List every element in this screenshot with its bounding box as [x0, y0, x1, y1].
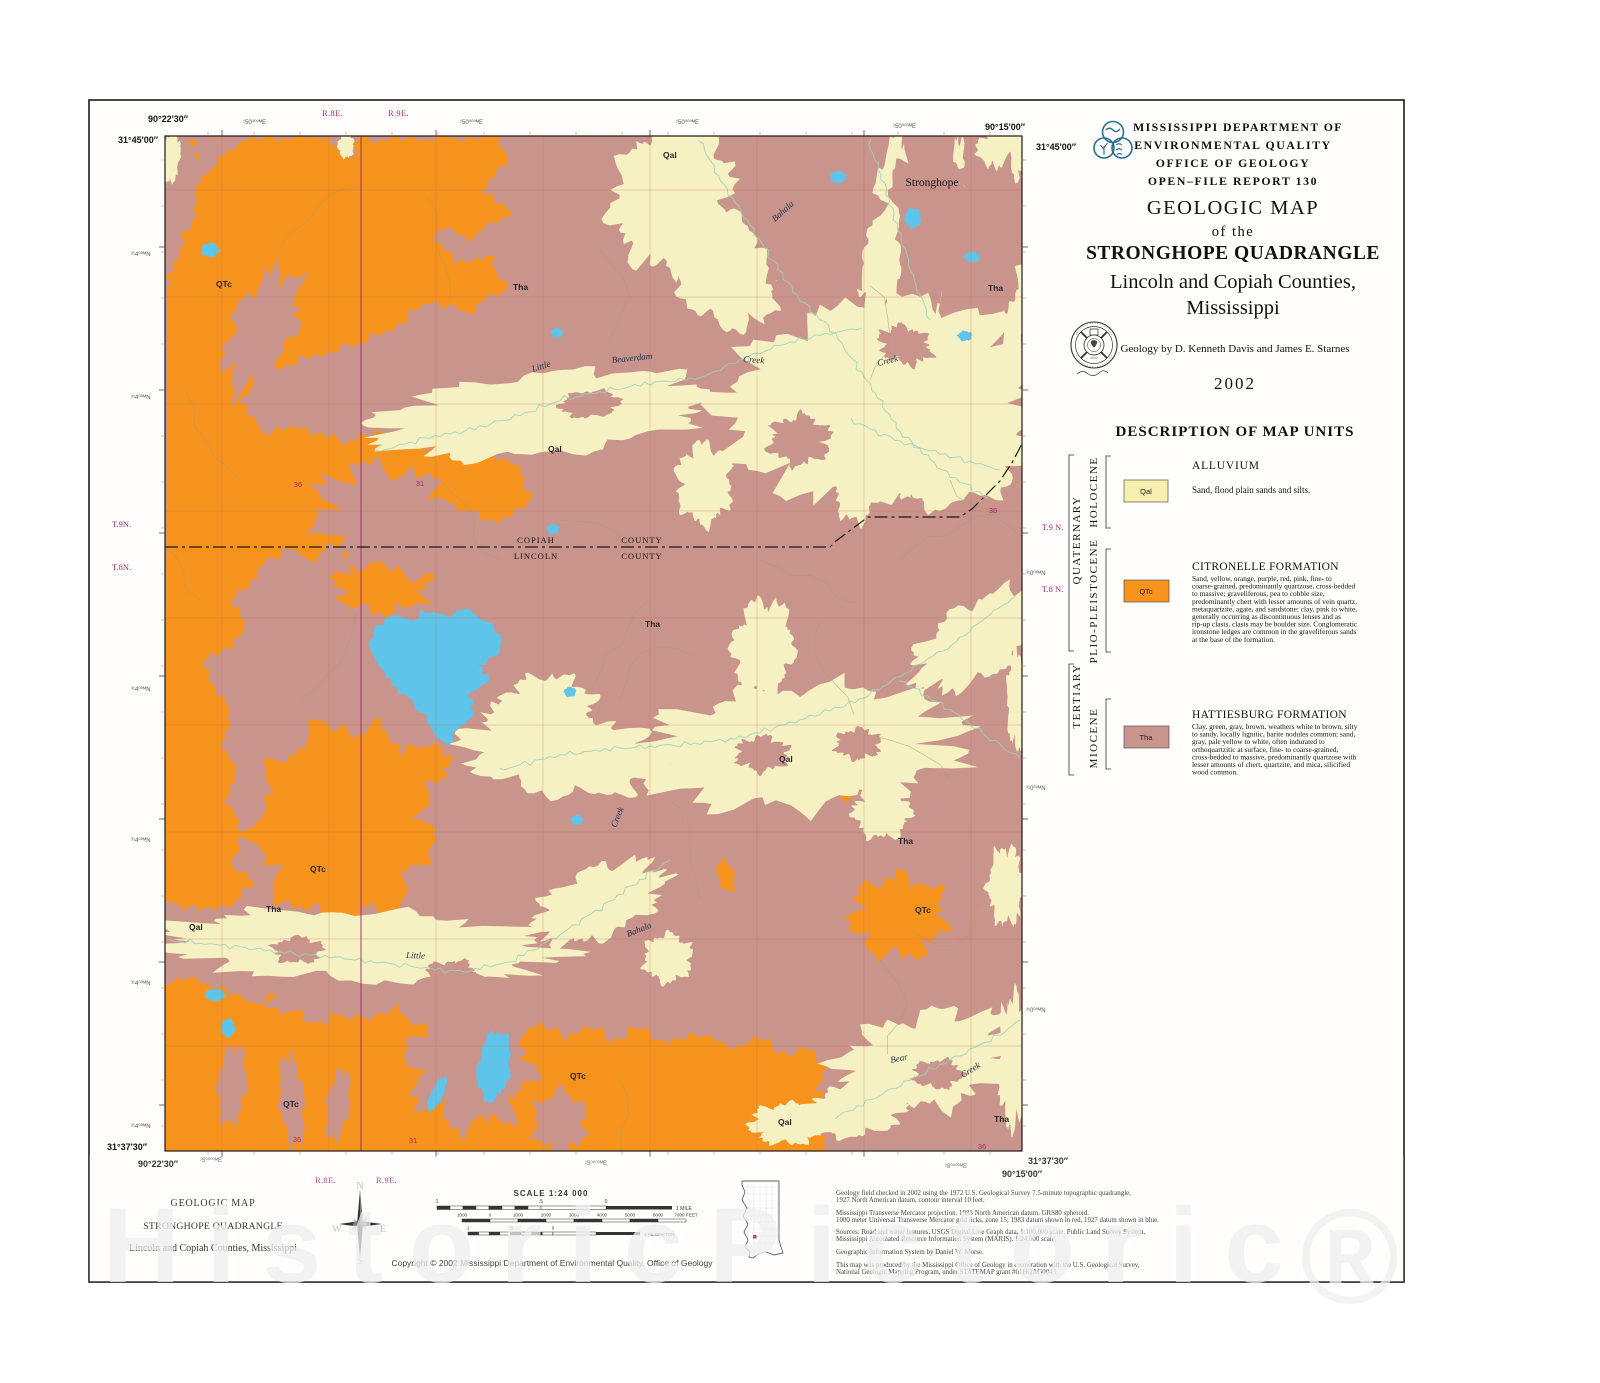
- svg-text:COUNTY: COUNTY: [621, 551, 662, 561]
- svg-text:QTc: QTc: [915, 905, 931, 915]
- svg-text:T.8N.: T.8N.: [112, 562, 131, 572]
- svg-text:Qal: Qal: [778, 1117, 792, 1127]
- svg-text:31°37'30″: 31°37'30″: [107, 1142, 148, 1152]
- svg-text:¹50⁰⁰⁰ᴹE: ¹50⁰⁰⁰ᴹE: [893, 123, 916, 130]
- svg-text:Qal: Qal: [779, 754, 793, 764]
- svg-text:Little: Little: [405, 950, 425, 961]
- svg-text:90°22'30″: 90°22'30″: [148, 114, 189, 124]
- svg-text:TERTIARY: TERTIARY: [1071, 663, 1083, 728]
- svg-text:³¹0⁰⁰ᴹN: ³¹0⁰⁰ᴹN: [1026, 570, 1046, 577]
- svg-text:90°15'00″: 90°15'00″: [985, 122, 1026, 132]
- svg-text:Qal: Qal: [548, 444, 562, 454]
- svg-text:³¹0⁰⁰ᴹN: ³¹0⁰⁰ᴹN: [1026, 785, 1046, 792]
- svg-text:wood common.: wood common.: [1192, 768, 1238, 777]
- svg-text:31: 31: [416, 479, 424, 488]
- svg-text:R.9E.: R.9E.: [388, 108, 409, 118]
- svg-text:ENVIRONMENTAL QUALITY: ENVIRONMENTAL QUALITY: [1134, 138, 1332, 152]
- svg-text:Tha: Tha: [994, 1114, 1009, 1124]
- svg-text:¹50⁰⁰⁰ᴹE: ¹50⁰⁰⁰ᴹE: [460, 119, 483, 126]
- svg-text:HATTIESBURG FORMATION: HATTIESBURG FORMATION: [1192, 709, 1347, 721]
- svg-text:³¹0⁰⁰ᴹN: ³¹0⁰⁰ᴹN: [1026, 1007, 1046, 1014]
- svg-text:at the base of the formation.: at the base of the formation.: [1192, 635, 1275, 644]
- svg-text:ALLUVIUM: ALLUVIUM: [1192, 460, 1260, 472]
- svg-text:³¹4⁰⁰ᴹN: ³¹4⁰⁰ᴹN: [131, 686, 151, 693]
- svg-text:31: 31: [409, 1136, 417, 1145]
- svg-text:LINCOLN: LINCOLN: [514, 551, 558, 561]
- svg-text:QTc: QTc: [283, 1099, 299, 1109]
- svg-text:Lincoln and Copiah Counties,: Lincoln and Copiah Counties,: [1110, 271, 1356, 293]
- svg-text:³¹4⁰⁰ᴹN: ³¹4⁰⁰ᴹN: [131, 251, 151, 258]
- svg-text:COPIAH: COPIAH: [517, 535, 555, 545]
- svg-text:2002: 2002: [1214, 374, 1256, 393]
- svg-text:QTc: QTc: [570, 1071, 586, 1081]
- svg-text:of the: of the: [1212, 224, 1254, 240]
- svg-text:Tha: Tha: [513, 282, 528, 292]
- svg-text:³¹4⁰⁰ᴹN: ³¹4⁰⁰ᴹN: [131, 394, 151, 401]
- svg-text:QTc: QTc: [310, 864, 326, 874]
- svg-text:T.8 N.: T.8 N.: [1042, 584, 1063, 594]
- svg-text:QUATERNARY: QUATERNARY: [1071, 496, 1083, 585]
- svg-text:Sand, flood plain sands and si: Sand, flood plain sands and silts.: [1192, 485, 1310, 495]
- svg-text:QTc: QTc: [1139, 587, 1153, 596]
- svg-text:GEOLOGIC MAP: GEOLOGIC MAP: [1147, 197, 1319, 219]
- svg-text:OPEN–FILE REPORT 130: OPEN–FILE REPORT 130: [1148, 174, 1318, 188]
- svg-text:Stronghope: Stronghope: [905, 177, 958, 189]
- svg-text:¹50⁰⁰⁰ᴹE: ¹50⁰⁰⁰ᴹE: [243, 119, 266, 126]
- svg-text:DESCRIPTION OF MAP UNITS: DESCRIPTION OF MAP UNITS: [1116, 424, 1355, 440]
- svg-text:Tha: Tha: [645, 619, 660, 629]
- svg-text:MISSISSIPPI DEPARTMENT OF: MISSISSIPPI DEPARTMENT OF: [1133, 120, 1343, 134]
- svg-text:¹50⁰⁰⁰ᴹE: ¹50⁰⁰⁰ᴹE: [676, 119, 699, 126]
- svg-text:HOLOCENE: HOLOCENE: [1088, 456, 1100, 527]
- svg-text:Qal: Qal: [663, 150, 677, 160]
- svg-text:CITRONELLE FORMATION: CITRONELLE FORMATION: [1192, 561, 1339, 573]
- svg-text:36: 36: [989, 506, 997, 515]
- svg-text:COUNTY: COUNTY: [621, 535, 662, 545]
- svg-text:36: 36: [293, 1135, 301, 1144]
- svg-text:31°45'00″: 31°45'00″: [1036, 142, 1077, 152]
- svg-text:Tha: Tha: [266, 904, 281, 914]
- svg-text:Qal: Qal: [1140, 487, 1152, 496]
- svg-text:R.8E.: R.8E.: [322, 108, 343, 118]
- svg-text:Tha: Tha: [898, 836, 913, 846]
- svg-text:HistoricPictoric: HistoricPictoric: [103, 1185, 1310, 1305]
- svg-text:36: 36: [294, 480, 302, 489]
- svg-text:Tha: Tha: [1140, 733, 1154, 742]
- svg-text:STRONGHOPE QUADRANGLE: STRONGHOPE QUADRANGLE: [1086, 243, 1380, 264]
- svg-text:³¹4⁰⁰ᴹN: ³¹4⁰⁰ᴹN: [131, 837, 151, 844]
- svg-text:®: ®: [1300, 1181, 1399, 1332]
- svg-text:PLIO-PLEISTOCENE: PLIO-PLEISTOCENE: [1088, 539, 1100, 664]
- svg-text:Creek: Creek: [743, 354, 766, 366]
- svg-text:Mississippi: Mississippi: [1186, 297, 1280, 319]
- svg-text:Qal: Qal: [189, 922, 203, 932]
- svg-text:Tha: Tha: [988, 283, 1003, 293]
- svg-text:Geology by D. Kenneth Davis an: Geology by D. Kenneth Davis and James E.…: [1120, 343, 1349, 355]
- svg-text:T.9 N.: T.9 N.: [1042, 522, 1063, 532]
- svg-text:36: 36: [978, 1142, 986, 1151]
- svg-text:31°45'00″: 31°45'00″: [118, 135, 159, 145]
- svg-text:QTc: QTc: [216, 279, 232, 289]
- svg-text:MIOCENE: MIOCENE: [1088, 708, 1100, 769]
- svg-text:T.9N.: T.9N.: [112, 519, 131, 529]
- svg-text:³¹4⁰⁰ᴹN: ³¹4⁰⁰ᴹN: [131, 980, 151, 987]
- svg-text:³¹4⁰⁰ᴹN: ³¹4⁰⁰ᴹN: [131, 1123, 151, 1130]
- svg-text:OFFICE OF GEOLOGY: OFFICE OF GEOLOGY: [1156, 156, 1311, 170]
